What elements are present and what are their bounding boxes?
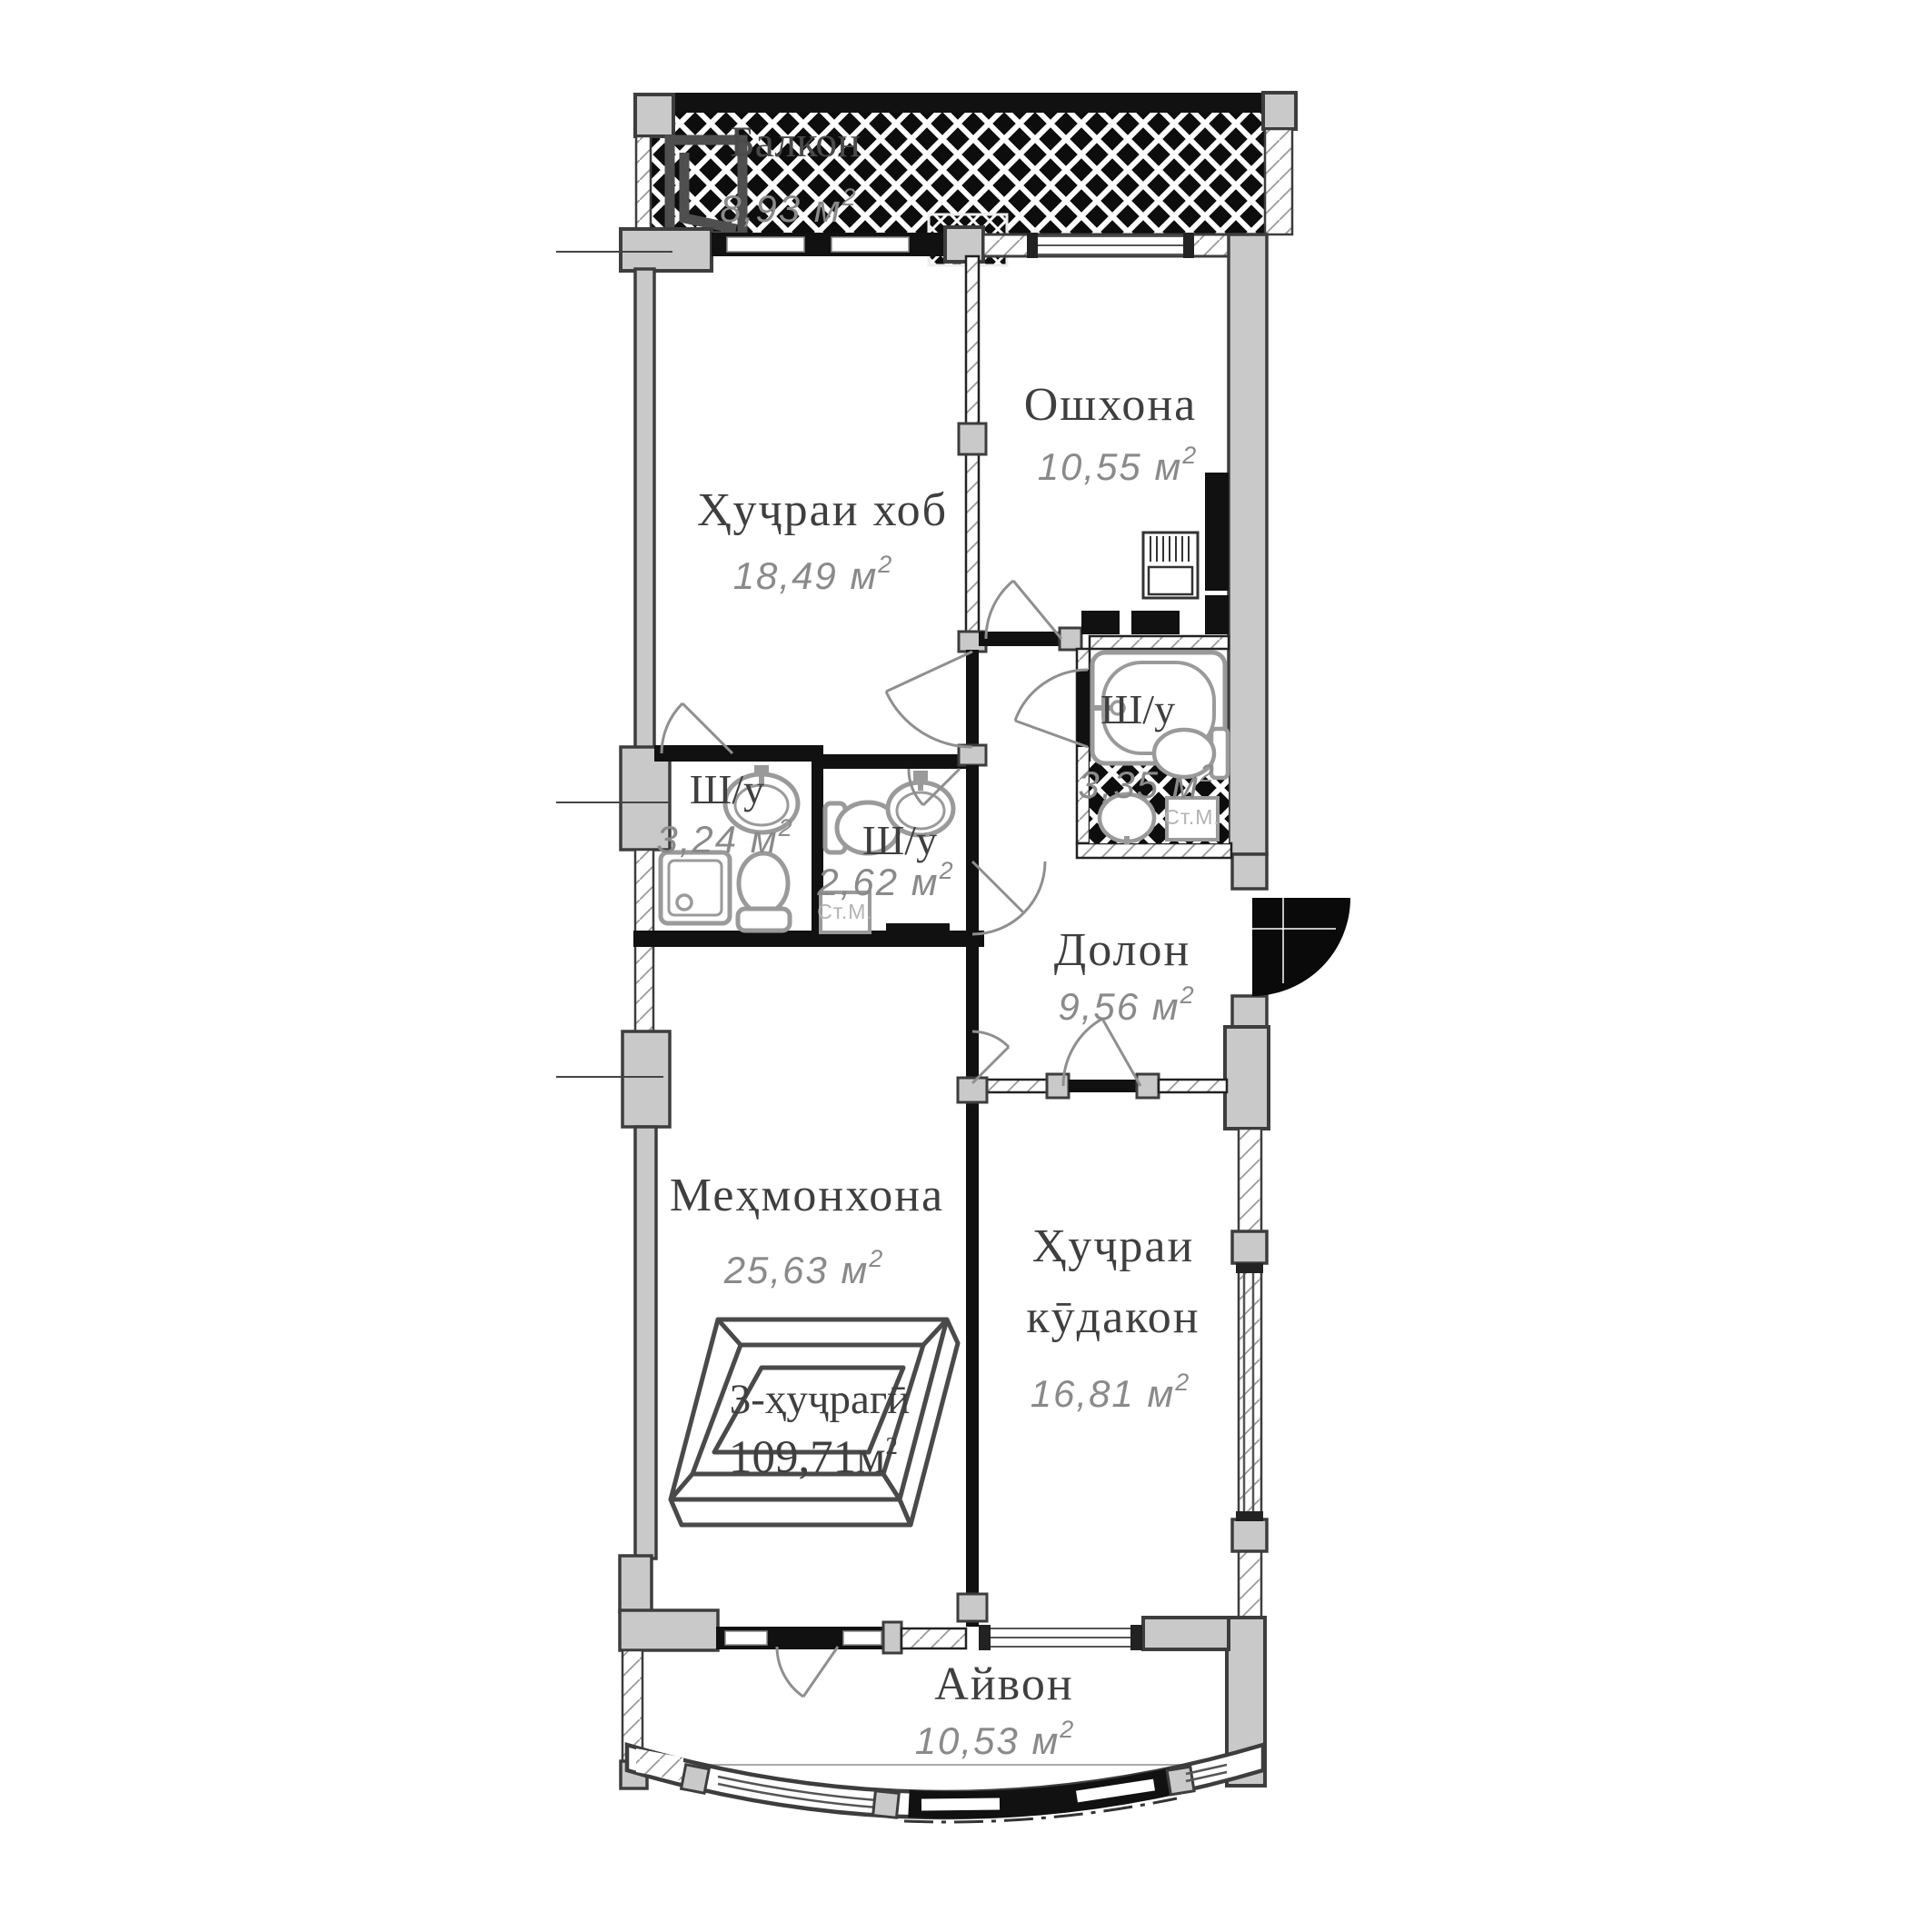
bath-ensuite-door [662, 703, 732, 762]
wall-column [959, 745, 986, 765]
hallway-area: 9,56 м2 [1058, 981, 1195, 1028]
stove-icon [1143, 533, 1198, 598]
room-kids: Ҳуҷраи кӯдакон 16,81 м2 [1026, 1220, 1200, 1415]
kids-room-door [1063, 1019, 1140, 1086]
balcony-left-wall [636, 136, 651, 234]
kitchen-counter [1131, 611, 1180, 634]
bay-column [682, 1765, 710, 1793]
door-swing-arc [777, 1647, 803, 1697]
wall-corner-block [621, 229, 712, 271]
kitchen-counter [1205, 595, 1229, 634]
hall-left-wall [966, 765, 979, 1031]
floor-mat [886, 923, 950, 932]
living-top-wall [633, 931, 984, 947]
kitchen-counter [1081, 611, 1120, 634]
kids-window-cap [1236, 1511, 1263, 1521]
kids-window-cap [1236, 1263, 1263, 1273]
door-leaf [1102, 1019, 1140, 1086]
hall-passage-door [972, 861, 1045, 934]
wall-column [883, 1622, 901, 1653]
room-living: Меҳмонхона 25,63 м2 [670, 1170, 944, 1291]
entry-jamb [1232, 996, 1267, 1029]
door-threshold [771, 1627, 838, 1649]
door-leaf [803, 1647, 838, 1697]
door-leaf [886, 652, 972, 692]
bedroom-window-pane [727, 237, 804, 252]
bath-main-area: 3,35 м2 [1078, 760, 1215, 806]
kitchen-door-threshold [979, 632, 1063, 646]
entry-jamb [1232, 854, 1267, 889]
bedroom-label: Ҳуҷраи хоб [697, 484, 948, 536]
kitchen-counter [1205, 473, 1229, 591]
window-cap [979, 1625, 991, 1650]
wall-column [958, 1594, 987, 1621]
wall-column [959, 423, 986, 454]
wall-segment [635, 1127, 656, 1559]
room-hallway: Долон 9,56 м2 [1054, 924, 1196, 1028]
kids-area: 16,81 м2 [1031, 1369, 1191, 1415]
wall-segment [1229, 234, 1267, 854]
entrance-door-swing [1252, 898, 1350, 996]
floor-plan-canvas: Балкон 8,93 м2 [0, 0, 1932, 1932]
bath-ensuite-label: Ш/у [690, 766, 764, 812]
hall-bottom-wall [1159, 1080, 1227, 1092]
bedroom-area: 18,49 м2 [733, 551, 894, 597]
living-area: 25,63 м2 [723, 1245, 885, 1291]
balcony-right-cap [1263, 93, 1296, 129]
bath-main-door-threshold [1077, 670, 1090, 747]
kids-label-line1: Ҳуҷраи [1032, 1220, 1195, 1272]
corner-block [1143, 1618, 1229, 1649]
kitchen-door [986, 581, 1061, 639]
bath-ensuite-area: 3,24 м2 [656, 814, 793, 861]
balcony-area: 8,93 м2 [720, 184, 857, 230]
bath-guest-label: Ш/у [862, 817, 937, 863]
entrance-door [1252, 898, 1350, 996]
wall-column [1232, 1231, 1267, 1263]
living-label: Меҳмонхона [670, 1170, 944, 1221]
stamp-total-area: 109,71м2 [729, 1432, 898, 1483]
balcony-label: Балкон [730, 118, 861, 166]
bedroom-door-threshold [966, 650, 979, 747]
balcony-left-cap [635, 95, 673, 136]
toilet-icon [738, 853, 790, 931]
door-leaf [1013, 581, 1061, 639]
wall-corner-block [620, 1556, 652, 1612]
balcony-right-wall [1265, 129, 1292, 234]
living-window-pane [725, 1631, 767, 1645]
wall-segment [635, 269, 654, 749]
kids-label-line2: кӯдакон [1026, 1291, 1200, 1343]
area-stamp: 3-ҳуҷрагӣ 109,71м2 [671, 1320, 958, 1525]
bath-guest-top-wall [823, 754, 966, 769]
balcony-top-wall [633, 93, 1270, 113]
kitchen-window-cap [1183, 233, 1194, 258]
door-swing-arc [986, 581, 1013, 639]
bay-window-pane [921, 1804, 1000, 1805]
wall-column [1232, 1519, 1267, 1551]
wall-corner-block [620, 1610, 718, 1650]
kitchen-area: 10,55 м2 [1038, 442, 1199, 488]
bay-column [873, 1791, 900, 1818]
bath-main-label: Ш/у [1100, 686, 1175, 732]
wall-column [1047, 1074, 1069, 1098]
veranda-area: 10,53 м2 [915, 1716, 1076, 1762]
room-bedroom: Ҳуҷраи хоб 18,49 м2 [697, 484, 948, 597]
living-window-pane [843, 1631, 881, 1645]
bath-main-bottom-wall [1077, 843, 1231, 858]
left-exterior-wall [556, 252, 718, 1788]
window-cap [1130, 1625, 1142, 1650]
wall-segment-hatched [901, 1628, 966, 1648]
hall-bottom-wall [979, 1080, 1050, 1092]
bath-guest-area: 2,62 м2 [816, 857, 954, 903]
room-kitchen: Ошхона 10,55 м2 [1024, 379, 1199, 488]
bedroom-window-pane [832, 237, 909, 252]
bath-main-top-wall [1090, 636, 1229, 649]
wall-column [622, 1031, 670, 1127]
hallway-label: Долон [1054, 924, 1191, 976]
floor-plan-drawing: Балкон 8,93 м2 [0, 0, 1932, 1932]
washing-machine-label: Ст.М. [1164, 805, 1220, 829]
door-swing-arc [886, 692, 972, 747]
entry-lobby-column [1225, 1027, 1269, 1129]
room-veranda: Айвон 10,53 м2 [915, 1658, 1076, 1762]
door-leaf [972, 861, 1024, 913]
bedroom-door [886, 652, 972, 747]
shower-icon [661, 852, 730, 923]
wall-column [1060, 628, 1081, 650]
kitchen-window-cap [1027, 233, 1038, 258]
veranda-door [771, 1627, 838, 1697]
veranda-label: Айвон [934, 1658, 1073, 1710]
stamp-title: 3-ҳуҷрагӣ [730, 1376, 911, 1423]
living-door-threshold [966, 1030, 979, 1084]
kitchen-label: Ошхона [1024, 379, 1198, 431]
door-threshold [662, 745, 732, 762]
stamp-extrusion [671, 1499, 911, 1525]
living-kids-wall [966, 1092, 979, 1627]
bath-main-fixtures: Ст.М. [1090, 652, 1229, 844]
kids-door-threshold [1069, 1080, 1139, 1092]
kitchen-fixtures [1081, 473, 1229, 634]
